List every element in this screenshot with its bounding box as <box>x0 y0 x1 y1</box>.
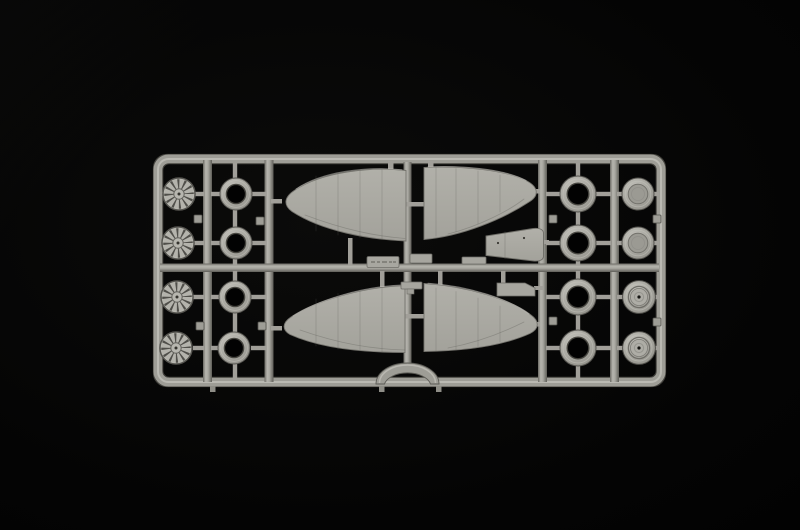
ejector-nub <box>653 318 661 326</box>
main-wheel <box>623 332 656 365</box>
ejector-nub <box>549 317 557 325</box>
upper-right-wing-half <box>424 166 536 239</box>
cowl-ring-small <box>218 332 250 364</box>
main-wheel <box>623 281 656 314</box>
ejector-nub <box>653 215 661 223</box>
sprue-photo <box>0 0 800 530</box>
upper-left-wing-half <box>286 169 406 241</box>
lower-left-wing-half <box>284 285 405 353</box>
foot-tab <box>436 386 442 392</box>
cowling-panel <box>486 228 544 261</box>
rivet-dot <box>523 237 525 239</box>
ejector-nub <box>256 217 264 225</box>
rivet-dot <box>497 242 499 244</box>
small-flat-part <box>462 257 486 264</box>
foot-tab <box>379 386 385 392</box>
embossed-mold-tag <box>367 257 399 268</box>
radial-engine-front <box>161 281 193 313</box>
ejector-nub <box>549 215 557 223</box>
small-flat-part <box>410 254 432 263</box>
ejector-nub <box>194 215 202 223</box>
cowl-ring-small <box>220 178 252 210</box>
cowl-ring-large <box>560 225 596 261</box>
cowl-ring-large <box>560 176 596 212</box>
foot-tab <box>210 386 216 392</box>
cowl-ring-small <box>220 227 252 259</box>
cowl-ring-large <box>560 330 596 366</box>
ejector-nub <box>258 322 266 330</box>
radial-engine-front <box>162 227 194 259</box>
cowl-ring-small <box>219 281 251 313</box>
radial-engine-front <box>160 332 192 364</box>
radial-engine-front <box>163 178 195 210</box>
cowl-ring-large <box>560 279 596 315</box>
wheel-hub-disc <box>622 178 654 210</box>
small-flat-part <box>497 283 535 296</box>
ejector-nub <box>196 322 204 330</box>
wheel-hub-disc <box>622 227 654 259</box>
product-photo <box>0 0 800 530</box>
